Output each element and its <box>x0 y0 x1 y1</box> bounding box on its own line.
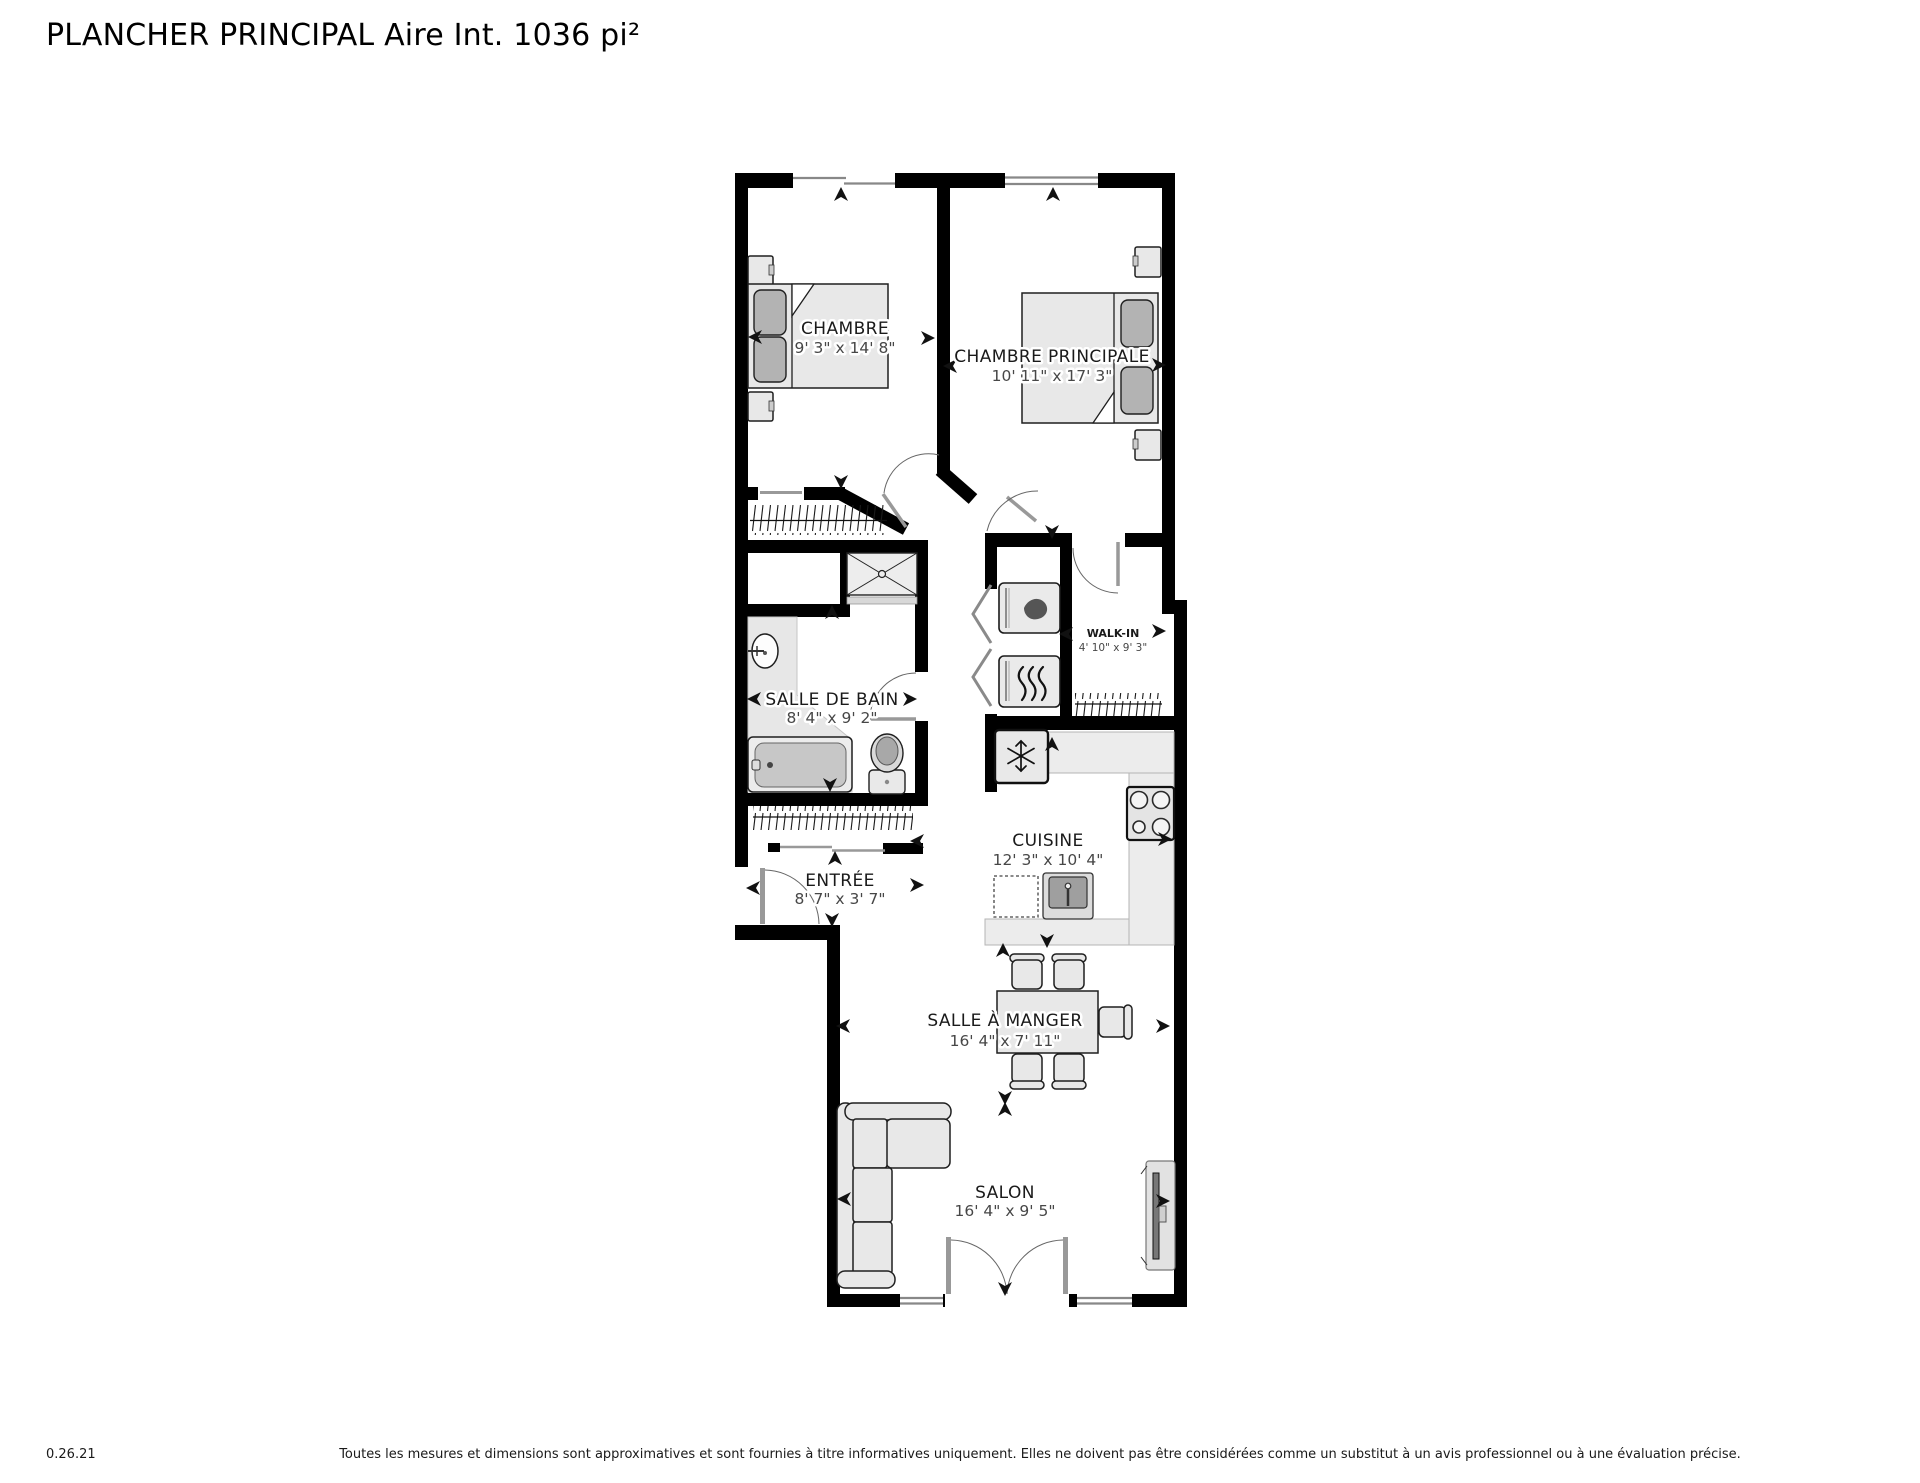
dimension-arrow <box>834 187 848 201</box>
dimension-arrow <box>910 878 924 892</box>
floor-plan-svg: CHAMBRE 9' 3" x 14' 8" CHAMBRE PRINCIPAL… <box>0 0 1920 1483</box>
room-dims-salle-de-bain: 8' 4" x 9' 2" <box>786 709 877 727</box>
french-doors <box>945 1237 1069 1307</box>
room-label-salle-a-manger: SALLE À MANGER <box>927 1009 1082 1031</box>
window <box>1077 1294 1132 1307</box>
dimension-arrow <box>825 913 839 927</box>
closet-hatch <box>750 505 887 535</box>
closet-hatch <box>1075 693 1162 716</box>
pillow <box>754 290 786 335</box>
laundry-nook <box>973 583 1060 707</box>
toilet <box>869 734 905 794</box>
room-label-salle-de-bain: SALLE DE BAIN <box>765 690 898 710</box>
dimension-arrow <box>1046 187 1060 201</box>
window <box>1005 173 1098 188</box>
nightstand <box>1135 247 1161 277</box>
room-dims-chambre-principale: 10' 11" x 17' 3" <box>992 367 1113 385</box>
room-label-chambre: CHAMBRE <box>801 319 889 339</box>
closet-sliders <box>780 847 885 851</box>
room-dims-salle-a-manger: 16' 4" x 7' 11" <box>950 1032 1061 1050</box>
kitchen-sink <box>1043 873 1093 919</box>
dining-chair <box>1099 1005 1132 1039</box>
room-label-walk-in: WALK-IN <box>1087 627 1140 640</box>
bathtub <box>748 737 852 792</box>
pillow <box>754 337 786 382</box>
pillow <box>1121 300 1153 347</box>
room-dims-chambre: 9' 3" x 14' 8" <box>795 339 896 357</box>
dryer <box>999 656 1060 707</box>
room-label-salon: SALON <box>975 1183 1035 1203</box>
room-dims-salon: 16' 4" x 9' 5" <box>955 1202 1056 1220</box>
floor-plan-page: PLANCHER PRINCIPAL Aire Int. 1036 pi² <box>0 0 1920 1483</box>
room-dims-entree: 8' 7" x 3' 7" <box>794 890 885 908</box>
dimension-arrow <box>834 475 848 489</box>
dimension-arrow <box>998 1282 1012 1296</box>
dimension-arrow <box>1156 1019 1170 1033</box>
footer-disclaimer: Toutes les mesures et dimensions sont ap… <box>0 1447 1920 1462</box>
room-label-chambre-principale: CHAMBRE PRINCIPALE <box>954 347 1149 367</box>
sliding-door <box>758 486 804 501</box>
sofa <box>837 1103 951 1288</box>
dining-chair <box>1052 954 1086 989</box>
dimension-arrow <box>921 331 935 345</box>
counter <box>985 919 1129 945</box>
dimension-arrow <box>998 1102 1012 1116</box>
room-label-cuisine: CUISINE <box>1012 831 1083 851</box>
nightstand <box>1135 430 1161 460</box>
dimension-arrow <box>1152 624 1166 638</box>
window <box>900 1294 943 1307</box>
dining-chair <box>1010 954 1044 989</box>
counter <box>1047 732 1174 773</box>
shelf-unit <box>847 553 917 604</box>
walkin-door <box>1072 533 1125 593</box>
fridge <box>995 730 1048 783</box>
window <box>793 173 895 188</box>
dishwasher <box>994 876 1038 917</box>
tv-screen <box>1153 1173 1159 1259</box>
bifold-doors <box>973 585 991 706</box>
pillow <box>1121 367 1153 414</box>
room-dims-walk-in: 4' 10" x 9' 3" <box>1079 642 1147 654</box>
dimension-arrow <box>746 881 760 895</box>
dining-chair <box>1052 1054 1086 1089</box>
tv <box>1141 1161 1175 1270</box>
room-salle-de-bain <box>748 553 917 794</box>
stove <box>1127 787 1174 840</box>
closet-hatch <box>753 806 913 830</box>
washer <box>999 583 1060 633</box>
dimension-arrow <box>828 851 842 865</box>
dining-chair <box>1010 1054 1044 1089</box>
dimension-arrow <box>903 692 917 706</box>
room-dims-cuisine: 12' 3" x 10' 4" <box>993 851 1104 869</box>
room-label-entree: ENTRÉE <box>805 869 875 891</box>
